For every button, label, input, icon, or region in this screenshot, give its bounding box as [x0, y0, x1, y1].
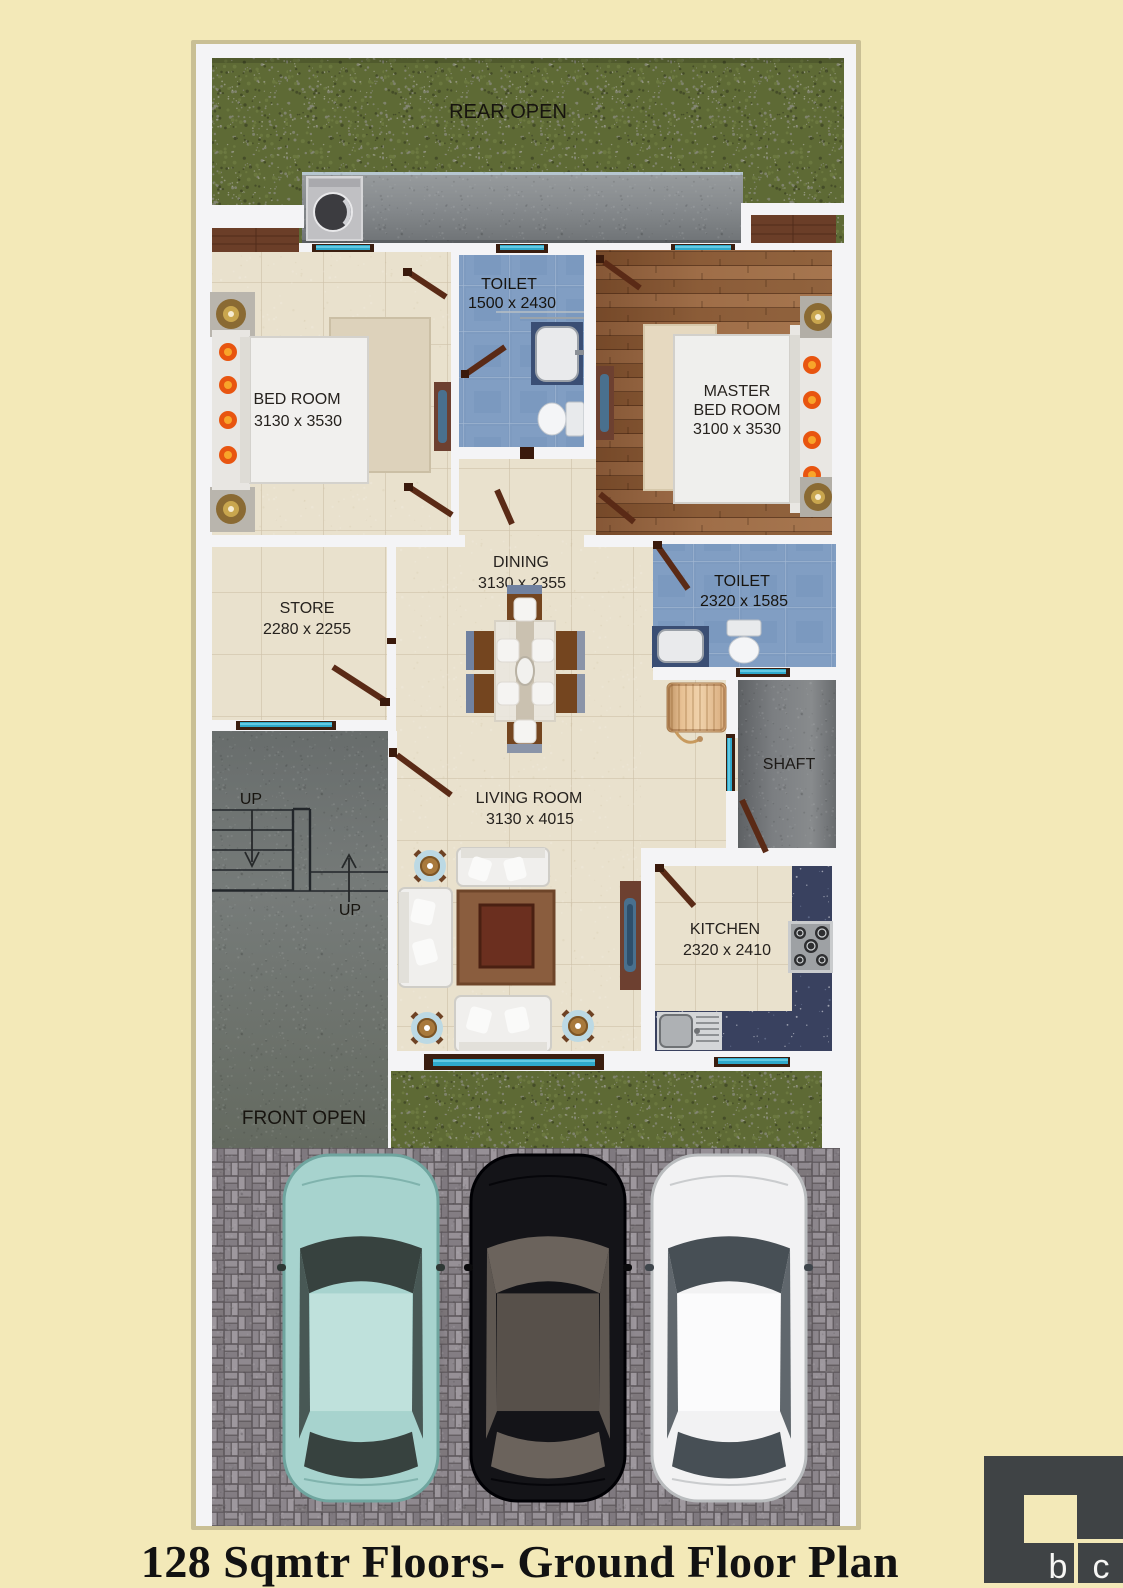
svg-text:SHAFT: SHAFT: [763, 756, 816, 773]
svg-text:DINING: DINING: [493, 554, 549, 571]
svg-text:MASTER: MASTER: [704, 383, 771, 400]
svg-text:3130 x 3530: 3130 x 3530: [254, 413, 342, 430]
svg-text:2320 x 1585: 2320 x 1585: [700, 593, 788, 610]
svg-text:REAR OPEN: REAR OPEN: [449, 101, 567, 123]
svg-text:b: b: [1049, 1548, 1068, 1586]
svg-text:3100 x 3530: 3100 x 3530: [693, 421, 781, 438]
svg-text:BED ROOM: BED ROOM: [693, 402, 780, 419]
svg-text:128 Sqmtr Floors- Ground Floo: 128 Sqmtr Floors- Ground Floor Plan: [141, 1536, 899, 1587]
svg-text:TOILET: TOILET: [714, 573, 770, 590]
svg-text:STORE: STORE: [280, 600, 335, 617]
svg-text:LIVING ROOM: LIVING ROOM: [476, 790, 583, 807]
svg-text:BED ROOM: BED ROOM: [253, 391, 340, 408]
svg-text:FRONT OPEN: FRONT OPEN: [242, 1108, 366, 1129]
svg-text:c: c: [1093, 1548, 1110, 1586]
svg-text:TOILET: TOILET: [481, 276, 537, 293]
svg-text:2280 x 2255: 2280 x 2255: [263, 621, 351, 638]
svg-text:2320 x 2410: 2320 x 2410: [683, 942, 771, 959]
svg-text:3130 x 4015: 3130 x 4015: [486, 811, 574, 828]
svg-text:UP: UP: [339, 902, 361, 919]
svg-text:1500 x 2430: 1500 x 2430: [468, 295, 556, 312]
svg-text:KITCHEN: KITCHEN: [690, 921, 760, 938]
svg-text:UP: UP: [240, 791, 262, 808]
